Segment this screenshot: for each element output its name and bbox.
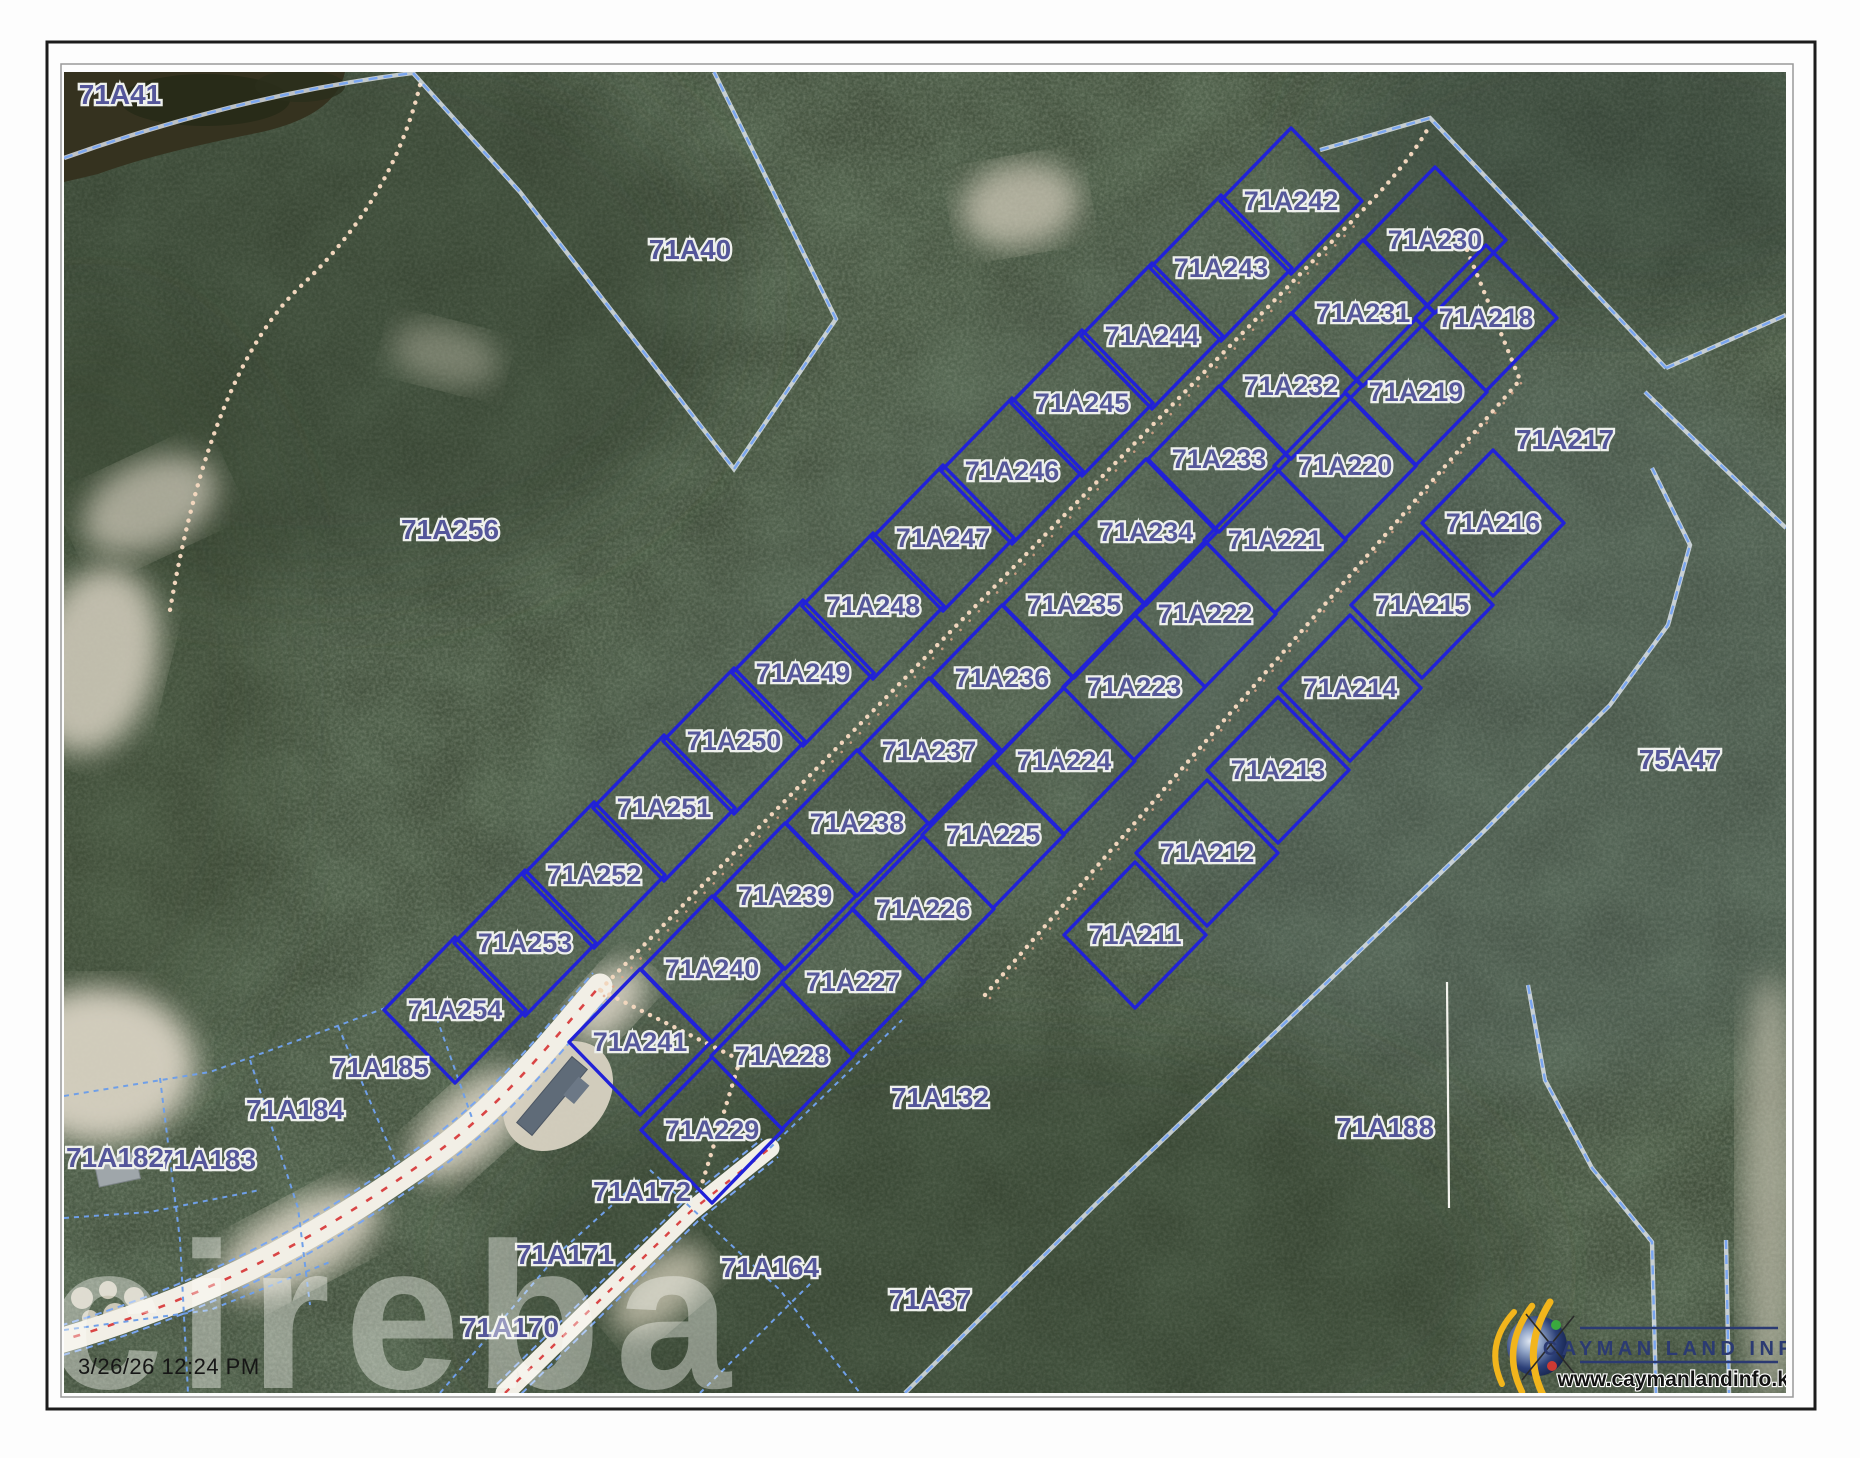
parcel-label: 71A234 (1099, 517, 1194, 547)
map-canvas: 71A25471A25371A25271A25171A25071A24971A2… (0, 0, 1860, 1458)
parcel-label: 71A214 (1303, 673, 1398, 703)
parcel-label: 71A41 (79, 79, 162, 110)
parcel-label: 71A219 (1369, 377, 1464, 407)
green-dot (1551, 1320, 1561, 1330)
parcel-label: 71A223 (1087, 672, 1182, 702)
parcel-label: 71A248 (826, 591, 921, 621)
parcel-label: 71A240 (665, 954, 760, 984)
parcel-label: 71A251 (617, 793, 712, 823)
timestamp: 3/26/26 12:24 PM (78, 1354, 260, 1379)
parcel-label: 71A185 (331, 1052, 429, 1083)
parcel-label: 71A237 (882, 736, 977, 766)
parcel-label: 71A247 (896, 523, 991, 553)
parcel-label: 71A231 (1316, 298, 1411, 328)
parcel-label: 71A250 (687, 726, 782, 756)
parcel-label: 71A243 (1174, 253, 1269, 283)
parcel-label: 71A232 (1244, 371, 1339, 401)
map-document-page: 71A25471A25371A25271A25171A25071A24971A2… (0, 0, 1860, 1458)
watermark-text: cireba (48, 1201, 745, 1433)
parcel-label: 71A246 (965, 456, 1060, 486)
parcel-label: 71A227 (806, 967, 901, 997)
parcel-label: 71A212 (1160, 838, 1255, 868)
parcel-label: 71A213 (1231, 755, 1326, 785)
parcel-label: 71A233 (1172, 444, 1267, 474)
red-dot (1547, 1361, 1557, 1371)
parcel-label: 71A226 (876, 894, 971, 924)
parcel-label: 71A37 (889, 1284, 972, 1315)
logo-title: CAYMAN LAND INFO (1543, 1338, 1815, 1360)
parcel-label: 71A254 (408, 995, 503, 1025)
parcel-label: 71A252 (547, 860, 642, 890)
parcel-label: 71A220 (1298, 451, 1393, 481)
parcel-label: 71A256 (401, 514, 499, 545)
parcel-label: 71A245 (1035, 388, 1130, 418)
parcel-label: 71A242 (1244, 186, 1339, 216)
parcel-label: 71A230 (1388, 225, 1483, 255)
parcel-label: 71A222 (1158, 599, 1253, 629)
parcel-label: 71A225 (946, 820, 1041, 850)
parcel-label: 71A241 (593, 1027, 688, 1057)
parcel-label: 71A188 (1336, 1112, 1434, 1143)
parcel-label: 71A228 (735, 1041, 830, 1071)
parcel-label: 71A224 (1017, 746, 1112, 776)
parcel-label: 71A216 (1446, 508, 1541, 538)
parcel-label: 71A253 (478, 928, 573, 958)
parcel-label: 71A239 (738, 881, 833, 911)
parcel-label: 71A238 (810, 808, 905, 838)
parcel-label: 71A235 (1027, 590, 1122, 620)
parcel-label: 71A182 (66, 1142, 164, 1173)
parcel-label: 71A215 (1375, 590, 1470, 620)
parcel-label: 71A218 (1439, 303, 1534, 333)
parcel-label: 71A217 (1516, 424, 1614, 455)
parcel-label: 71A40 (649, 234, 732, 265)
parcel-label: 71A244 (1105, 321, 1200, 351)
aerial-imagery: 71A25471A25371A25271A25171A25071A24971A2… (0, 0, 1860, 1458)
parcel-label: 71A184 (246, 1094, 345, 1125)
parcel-label: 75A47 (1639, 744, 1722, 775)
parcel-label: 71A236 (955, 663, 1050, 693)
parcel-label: 71A211 (1088, 920, 1181, 950)
parcel-label: 71A132 (891, 1082, 989, 1113)
logo-website: www.caymanlandinfo.ky (1556, 1368, 1800, 1391)
parcel-label: 71A229 (665, 1115, 760, 1145)
parcel-label: 71A221 (1228, 525, 1323, 555)
parcel-label: 71A183 (158, 1144, 256, 1175)
parcel-label: 71A249 (756, 658, 851, 688)
